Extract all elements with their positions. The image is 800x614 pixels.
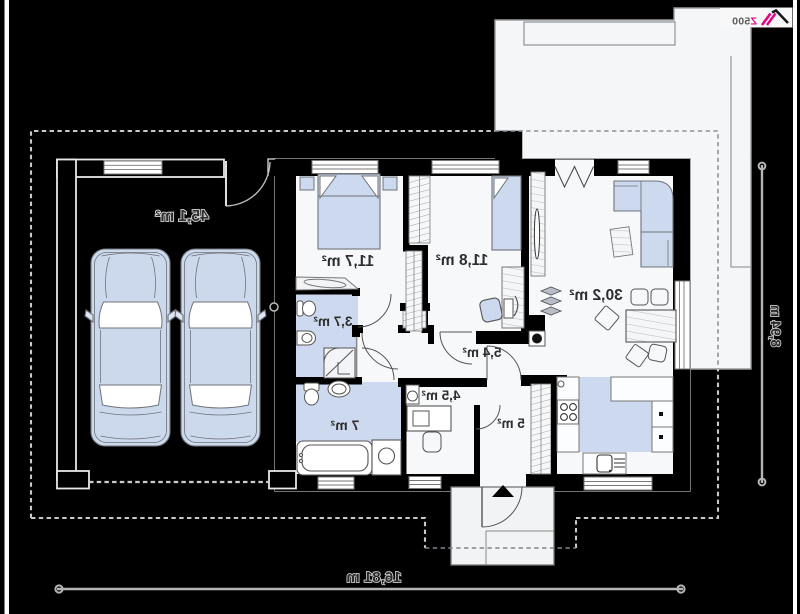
svg-text:5,4 m²: 5,4 m² — [462, 345, 502, 360]
svg-text:5 m²: 5 m² — [497, 416, 525, 431]
svg-text:Z500: Z500 — [732, 16, 757, 28]
svg-text:4,5 m²: 4,5 m² — [421, 388, 461, 403]
svg-text:30,2 m²: 30,2 m² — [569, 287, 622, 304]
svg-text:45,1 m²: 45,1 m² — [155, 208, 208, 225]
svg-text:11,7 m²: 11,7 m² — [322, 253, 375, 270]
svg-text:7 m²: 7 m² — [330, 417, 359, 433]
svg-text:16,81 m: 16,81 m — [346, 569, 401, 586]
svg-text:3,7 m²: 3,7 m² — [313, 314, 353, 329]
svg-text:11,8 m²: 11,8 m² — [436, 252, 489, 269]
svg-text:8,94 m: 8,94 m — [768, 305, 783, 347]
